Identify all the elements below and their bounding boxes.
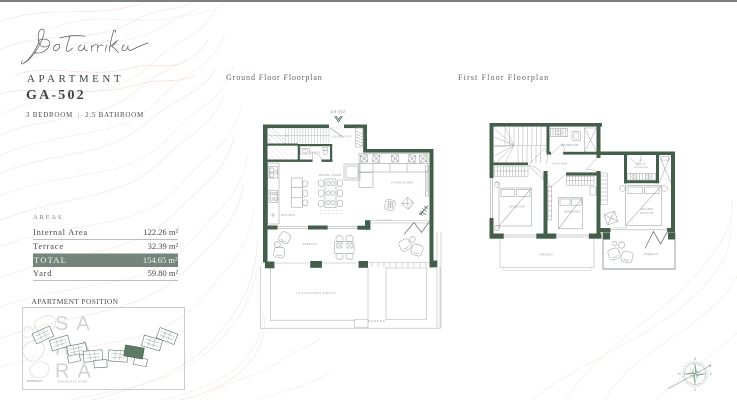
svg-text:BALUSTRADE: BALUSTRADE — [377, 219, 393, 222]
svg-text:ENTRANCE: ENTRANCE — [332, 135, 351, 139]
svg-text:W: W — [678, 372, 681, 376]
svg-text:LIVING ROOM: LIVING ROOM — [391, 182, 413, 185]
svg-text:HALLWAY: HALLWAY — [553, 163, 568, 166]
svg-text:CULTIVATED GRASS: CULTIVATED GRASS — [296, 291, 336, 295]
svg-text:ENSUITE: ENSUITE — [640, 212, 653, 215]
svg-text:BATHROOM: BATHROOM — [634, 166, 648, 169]
svg-text:BEDROOM: BEDROOM — [564, 211, 580, 214]
svg-text:TOILET: TOILET — [309, 152, 321, 155]
svg-text:S: S — [694, 388, 696, 392]
svg-text:MASTER: MASTER — [641, 208, 654, 211]
svg-text:N: N — [694, 357, 697, 361]
svg-text:TERRACE: TERRACE — [303, 243, 318, 246]
svg-text:GA-502: GA-502 — [331, 110, 346, 114]
svg-text:E: E — [710, 372, 712, 376]
svg-text:TERRACE: TERRACE — [539, 254, 554, 257]
svg-text:TERRACE: TERRACE — [644, 253, 659, 256]
svg-text:DINING ROOM: DINING ROOM — [319, 174, 342, 177]
svg-text:BEDROOM: BEDROOM — [509, 206, 525, 209]
svg-text:WC: WC — [639, 160, 643, 162]
svg-text:KITCHEN: KITCHEN — [281, 214, 295, 217]
svg-text:BALUSTRADE: BALUSTRADE — [614, 227, 629, 230]
svg-text:BATHROOM: BATHROOM — [561, 144, 579, 147]
